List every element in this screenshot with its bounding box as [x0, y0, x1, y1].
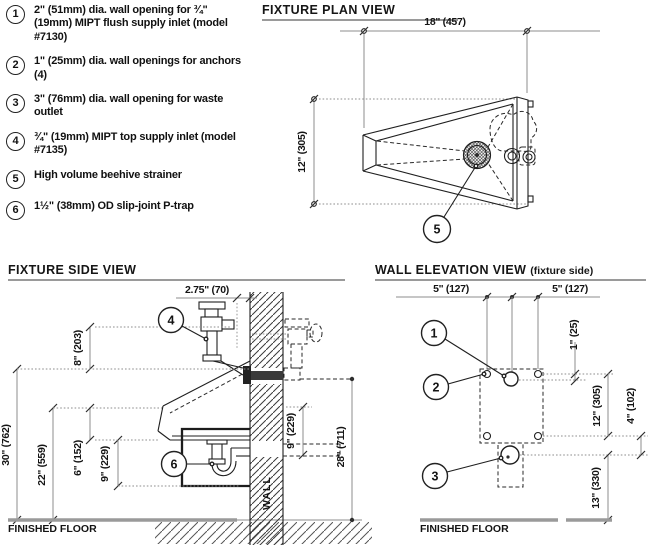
side-dim-flush-height: 28" (711) — [335, 377, 354, 522]
callout-top-inlet: 4 — [159, 308, 208, 341]
callout-ptrap-number: 6 — [171, 458, 178, 472]
side-dim-rim-label: 30" (762) — [0, 424, 12, 465]
side-view: WALL — [0, 284, 372, 545]
elev-dim-left-label: 5" (127) — [433, 283, 469, 295]
elev-dim-flush-offset-label: 1" (25) — [568, 320, 580, 350]
flush-wall-opening — [250, 371, 283, 380]
side-dim-basin-depth: 6" (152) — [72, 404, 94, 476]
callout-flush-number: 1 — [431, 327, 438, 341]
elev-dim-right-label: 5" (127) — [552, 283, 588, 295]
elevation-view: 5" (127) 5" (127) — [396, 283, 648, 535]
elev-floor: FINISHED FLOOR — [420, 520, 612, 535]
anchor-hole — [535, 371, 542, 378]
callout-anchor-openings: 2 — [424, 372, 486, 399]
elev-dim-waste-height: 13" (330) — [590, 451, 612, 524]
side-wall: WALL — [249, 292, 284, 545]
anchor-hole — [535, 433, 542, 440]
side-dim-basin-depth-label: 6" (152) — [72, 440, 84, 476]
drawing-canvas: 18" (457) 12" (305) — [0, 0, 650, 545]
elev-dim-anchor-span-label: 12" (305) — [591, 385, 603, 426]
side-dim-inlet-label: 8" (203) — [72, 330, 84, 366]
elev-dim-waste-offset-label: 4" (102) — [625, 388, 637, 424]
plan-dim-depth: 12" (305) — [296, 95, 528, 208]
plan-dim-width-label: 18" (457) — [424, 16, 465, 28]
side-dim-waste-label: 9" (229) — [285, 413, 297, 449]
side-dim-offset: 2.75" (70) — [176, 284, 257, 302]
plan-dim-depth-label: 12" (305) — [296, 131, 308, 172]
elev-floor-label: FINISHED FLOOR — [420, 523, 509, 535]
callout-anchor-number: 2 — [433, 381, 440, 395]
callout-ptrap: 6 — [162, 452, 214, 477]
callout-waste-opening: 3 — [423, 456, 503, 488]
elev-dim-waste-height-label: 13" (330) — [590, 467, 602, 508]
elev-waste-outlet — [498, 443, 523, 487]
callout-strainer-number: 5 — [434, 223, 441, 237]
anchor-hole — [484, 433, 491, 440]
side-dim-waste: 9" (229) — [285, 403, 312, 459]
side-dim-front-rim-label: 22" (559) — [36, 444, 48, 485]
spec-sheet-page: 1 2" (51mm) dia. wall opening for ¾" (19… — [0, 0, 650, 545]
plan-dim-width: 18" (457) — [340, 16, 600, 128]
callout-top-inlet-number: 4 — [168, 314, 175, 328]
callout-flush-opening: 1 — [422, 321, 506, 378]
side-dim-trap-label: 9" (229) — [99, 446, 111, 482]
plan-basin-creases — [377, 104, 513, 201]
wall-label: WALL — [261, 476, 273, 510]
callout-waste-number: 3 — [432, 470, 439, 484]
side-dim-offset-label: 2.75" (70) — [185, 284, 229, 296]
callout-strainer: 5 — [424, 164, 478, 242]
elev-dim-waste-offset: 4" (102) — [520, 388, 648, 459]
elev-dim-flush-offset: 1" (25) — [519, 320, 586, 385]
flush-supply-opening — [504, 372, 518, 386]
side-floor-label: FINISHED FLOOR — [8, 523, 97, 535]
side-dim-flush-label: 28" (711) — [335, 427, 347, 468]
plan-view: 18" (457) 12" (305) — [296, 16, 600, 243]
